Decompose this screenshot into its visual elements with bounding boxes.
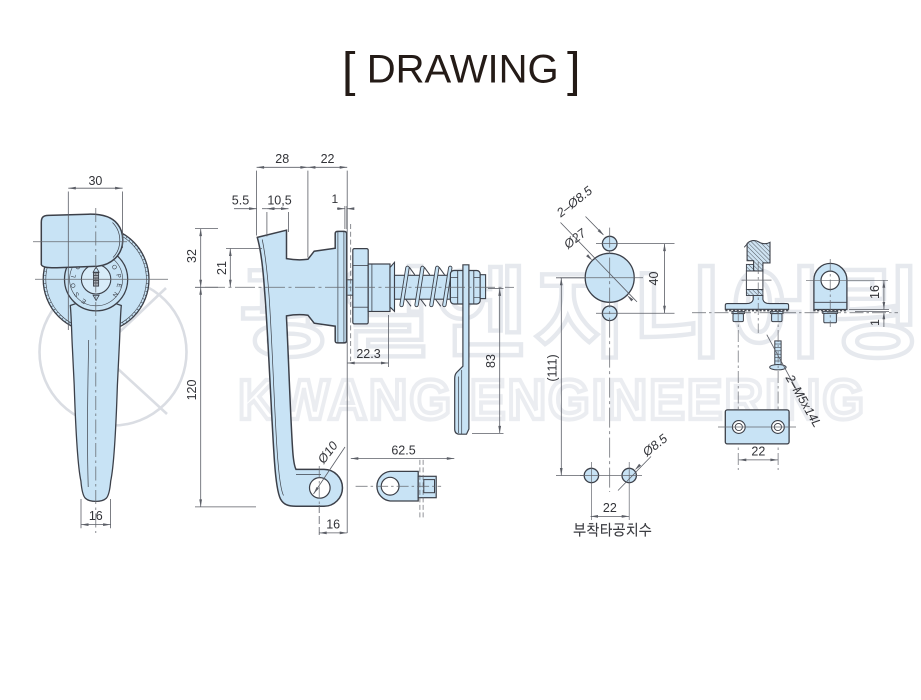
svg-text:1: 1 <box>868 319 882 326</box>
svg-text:DRAWING: DRAWING <box>367 48 559 92</box>
svg-text:22.3: 22.3 <box>356 347 380 361</box>
svg-text:30: 30 <box>88 174 102 188</box>
svg-text:28: 28 <box>275 152 289 166</box>
svg-text:1: 1 <box>332 192 339 206</box>
svg-text:[: [ <box>342 43 356 97</box>
svg-text:22: 22 <box>603 501 617 515</box>
svg-text:22: 22 <box>321 152 335 166</box>
svg-text:16: 16 <box>326 518 340 532</box>
svg-text:120: 120 <box>185 380 199 401</box>
svg-text:32: 32 <box>185 249 199 263</box>
svg-text:21: 21 <box>215 261 229 275</box>
svg-text:40: 40 <box>647 272 661 286</box>
svg-text:22: 22 <box>751 444 765 458</box>
svg-text:10,5: 10,5 <box>267 193 291 207</box>
svg-text:62.5: 62.5 <box>391 443 415 457</box>
svg-text:(111): (111) <box>545 354 559 381</box>
svg-text:5.5: 5.5 <box>232 193 249 207</box>
svg-text:]: ] <box>567 43 580 97</box>
svg-text:16: 16 <box>868 285 882 299</box>
svg-text:83: 83 <box>484 354 498 368</box>
